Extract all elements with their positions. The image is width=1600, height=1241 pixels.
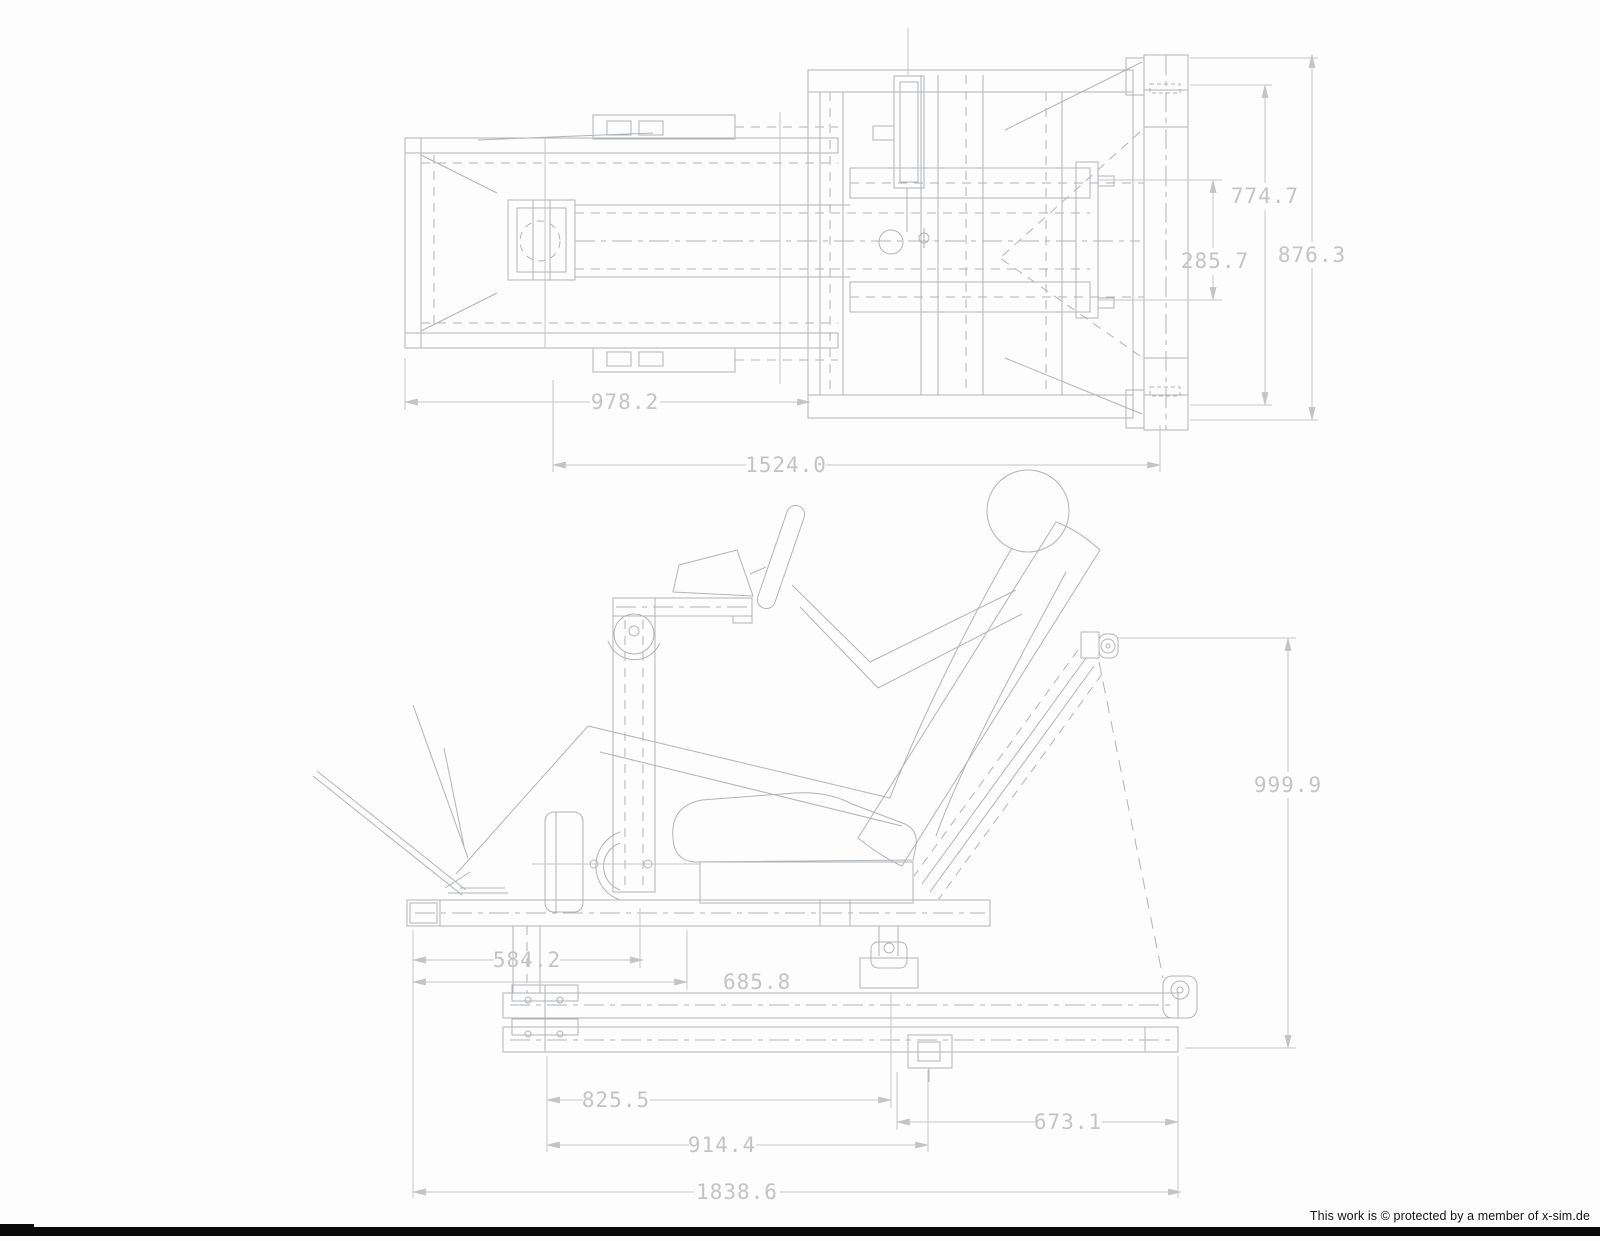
dim-label-overall-height: 999.9 <box>1254 773 1322 797</box>
dim-label-overall-length: 1838.6 <box>696 1180 778 1204</box>
copyright-notice: This work is © protected by a member of … <box>1310 1209 1590 1223</box>
seat <box>673 522 1163 978</box>
page-bottom-edge-notch <box>0 1224 34 1228</box>
rear-pivot-bracket <box>1163 976 1197 1018</box>
top-view <box>405 28 1188 430</box>
seat-pan <box>700 862 913 903</box>
top-view-dimension-labels: 978.2 1524.0 285.7 774.7 876.3 <box>591 184 1346 477</box>
page-bottom-edge <box>0 1227 1600 1236</box>
driver-torso <box>890 548 1012 798</box>
driver-shin <box>456 726 588 874</box>
damper-mount <box>860 926 918 988</box>
drawing-sheet: 978.2 1524.0 285.7 774.7 876.3 <box>0 0 1600 1236</box>
under-rail-bracket <box>908 1035 952 1082</box>
slide-carriage <box>508 200 575 280</box>
seat-backrest <box>858 522 1100 866</box>
dim-label-rail-mid: 914.4 <box>688 1133 756 1157</box>
dim-label-overall-width: 1524.0 <box>745 453 827 477</box>
dim-label-inner-height: 285.7 <box>1181 249 1249 273</box>
dim-label-rail-rear: 673.1 <box>1034 1110 1102 1134</box>
driver-figure <box>445 470 1069 888</box>
recline-bracket <box>1081 632 1118 658</box>
base-frame <box>407 900 1197 1082</box>
actuator <box>873 76 924 232</box>
driver-thigh <box>588 726 890 798</box>
display-panel <box>673 550 753 596</box>
steering-column <box>532 598 752 912</box>
column-pivot <box>629 626 639 636</box>
driver-foot <box>445 872 470 888</box>
dim-label-rail-front: 825.5 <box>582 1088 650 1112</box>
side-view-dimensions <box>413 638 1296 1198</box>
steering-wheel <box>755 503 807 611</box>
cad-canvas: 978.2 1524.0 285.7 774.7 876.3 <box>0 0 1600 1236</box>
rear-frame-assembly <box>808 28 1188 430</box>
pivot-hole <box>879 230 903 254</box>
left-rail-assembly <box>405 112 1140 384</box>
driver-head <box>987 470 1069 552</box>
driver-arm <box>792 585 1016 662</box>
right-cross-member <box>1126 55 1188 430</box>
recline-strut <box>1099 662 1163 978</box>
column-lower-bracket <box>532 812 700 912</box>
dim-label-frame-height: 774.7 <box>1231 184 1299 208</box>
dim-label-pedal-to-column: 584.2 <box>493 948 561 972</box>
pedal-assembly <box>313 705 508 895</box>
dim-label-rail-span: 978.2 <box>591 390 659 414</box>
dim-label-overall-height: 876.3 <box>1278 243 1346 267</box>
dim-label-base-to-seat: 685.8 <box>723 970 791 994</box>
